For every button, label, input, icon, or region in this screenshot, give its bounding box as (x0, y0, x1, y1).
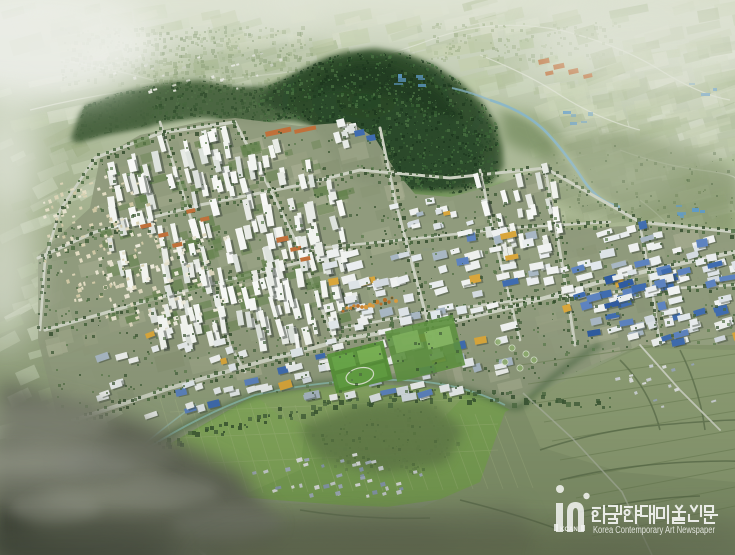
svg-text:Korea Contemporary Art Newspap: Korea Contemporary Art Newspaper (593, 525, 716, 536)
svg-text:KCAN: KCAN (560, 526, 578, 533)
